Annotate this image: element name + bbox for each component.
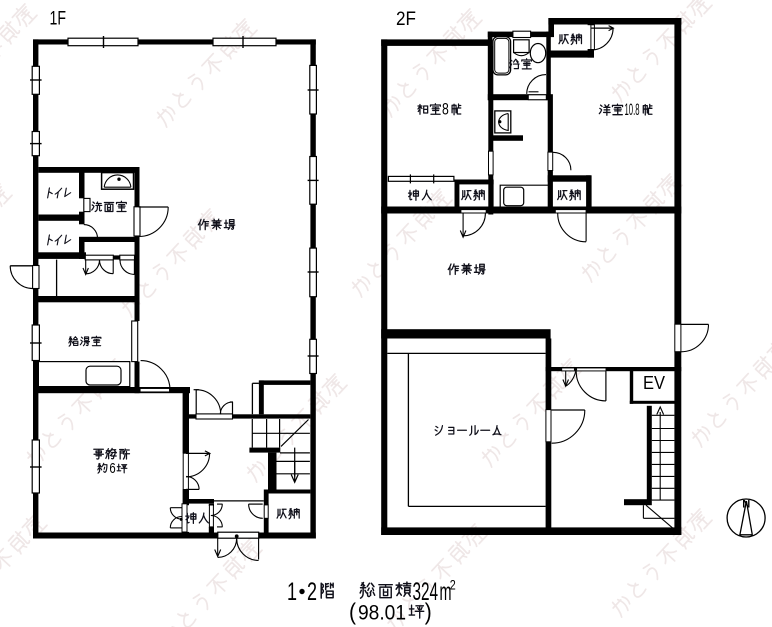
svg-text:6: 6 (109, 460, 115, 477)
svg-text:1F: 1F (50, 8, 67, 29)
svg-text:2: 2 (450, 577, 456, 593)
svg-text:8: 8 (442, 100, 449, 119)
svg-text:EV: EV (643, 372, 666, 393)
svg-text:(: ( (349, 599, 356, 625)
svg-text:2: 2 (307, 578, 317, 606)
svg-text:10.8: 10.8 (625, 100, 640, 119)
svg-text:98.01: 98.01 (358, 601, 406, 624)
svg-text:N: N (742, 499, 750, 511)
svg-text:): ) (425, 599, 432, 625)
svg-text:2F: 2F (396, 9, 416, 30)
svg-text:1: 1 (287, 578, 297, 606)
